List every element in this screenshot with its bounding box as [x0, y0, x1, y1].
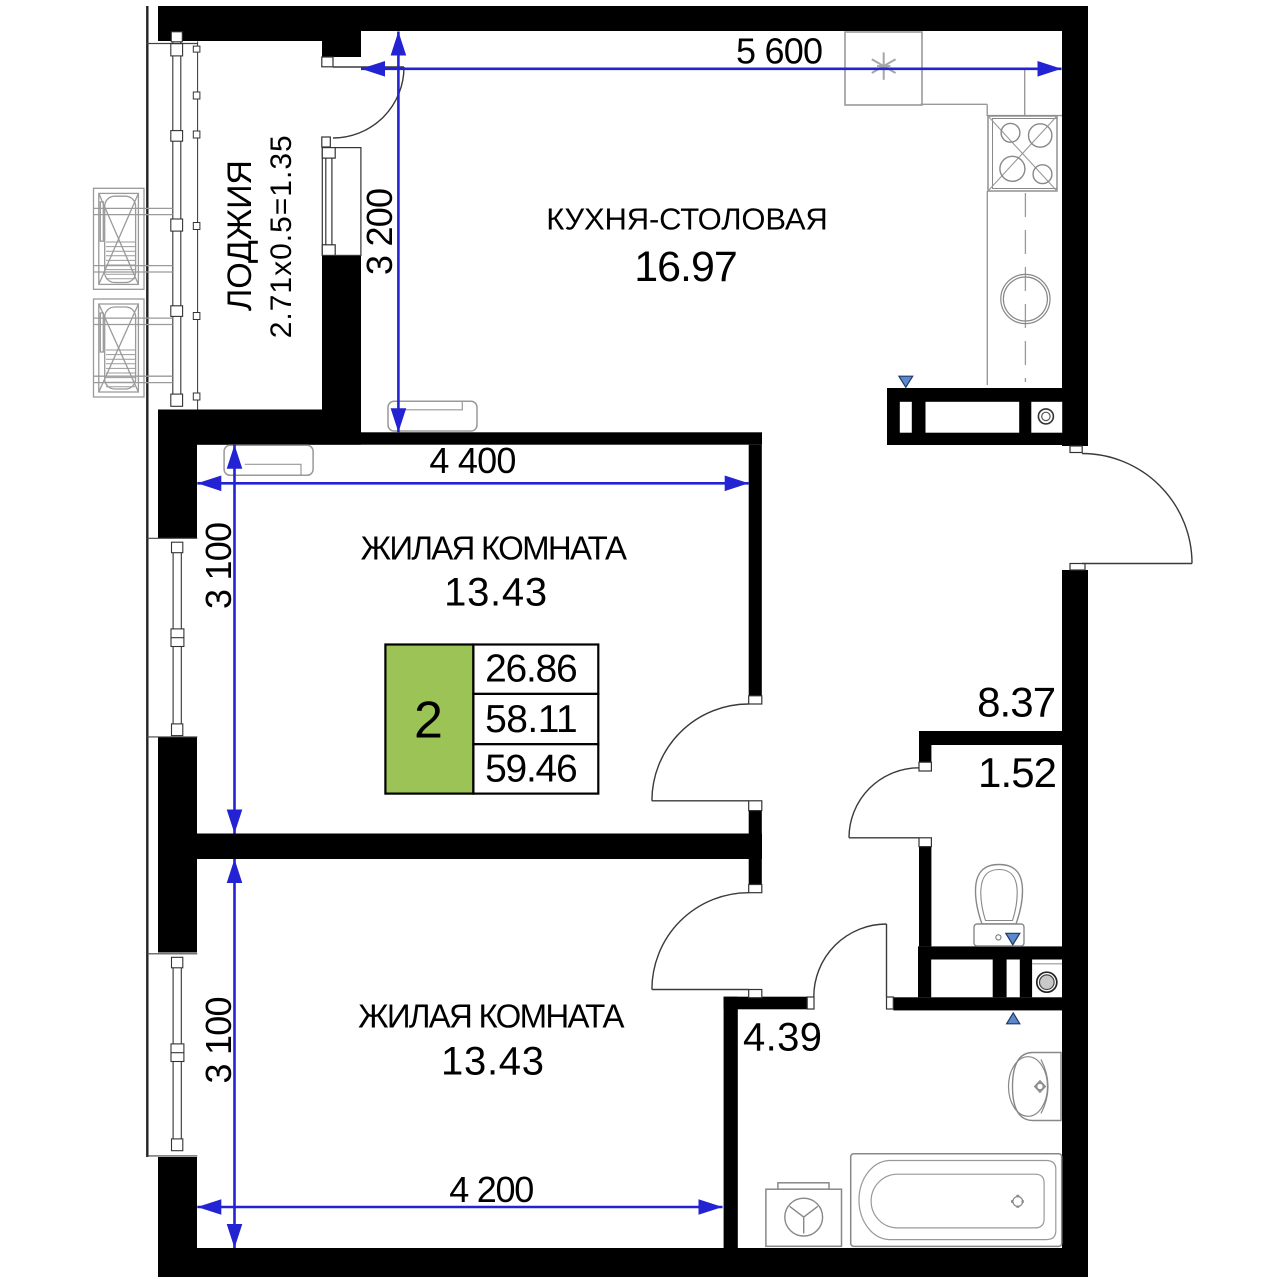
svg-text:3 100: 3 100: [198, 522, 239, 609]
svg-text:4.39: 4.39: [743, 1016, 822, 1060]
svg-text:ЛОДЖИЯ: ЛОДЖИЯ: [221, 160, 259, 311]
svg-text:2: 2: [414, 692, 443, 750]
svg-text:4 400: 4 400: [429, 440, 516, 481]
svg-text:5 600: 5 600: [736, 31, 823, 72]
svg-text:13.43: 13.43: [444, 571, 547, 615]
svg-text:3 100: 3 100: [198, 997, 239, 1084]
svg-text:ЖИЛАЯ КОМНАТА: ЖИЛАЯ КОМНАТА: [361, 530, 627, 567]
svg-text:ЖИЛАЯ КОМНАТА: ЖИЛАЯ КОМНАТА: [358, 997, 624, 1034]
svg-text:26.86: 26.86: [485, 648, 578, 691]
svg-text:3 200: 3 200: [359, 188, 400, 275]
svg-text:2.71х0.5=1.35: 2.71х0.5=1.35: [265, 135, 298, 338]
svg-text:8.37: 8.37: [977, 679, 1056, 726]
svg-text:58.11: 58.11: [485, 698, 578, 741]
svg-text:13.43: 13.43: [441, 1040, 544, 1084]
svg-text:4 200: 4 200: [449, 1169, 534, 1210]
svg-text:16.97: 16.97: [634, 243, 738, 291]
svg-text:1.52: 1.52: [978, 749, 1057, 796]
svg-text:59.46: 59.46: [485, 748, 578, 791]
svg-text:КУХНЯ-СТОЛОВАЯ: КУХНЯ-СТОЛОВАЯ: [546, 202, 828, 237]
